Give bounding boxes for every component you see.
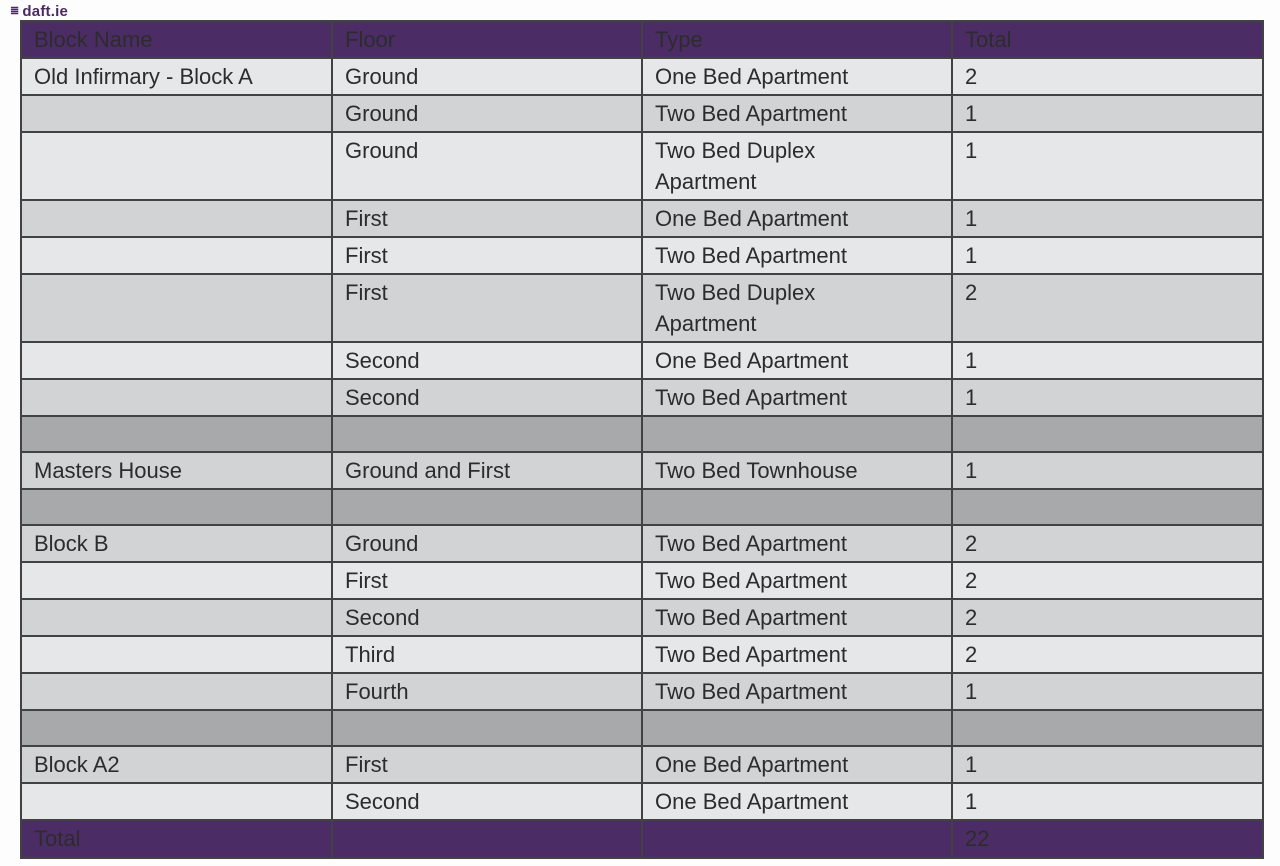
block-name-cell (21, 710, 332, 746)
type-cell: Two Bed Apartment (642, 379, 952, 416)
floor-cell: Ground (332, 58, 642, 95)
table-row: GroundTwo Bed Apartment1 (21, 95, 1263, 132)
block-name-cell (21, 342, 332, 379)
total-cell: 1 (952, 673, 1263, 710)
block-name-cell (21, 636, 332, 673)
block-name-cell (21, 783, 332, 820)
spacer-row (21, 489, 1263, 525)
block-name-cell: Masters House (21, 452, 332, 489)
total-cell: 1 (952, 95, 1263, 132)
type-cell: Two Bed Apartment (642, 562, 952, 599)
total-cell: 1 (952, 342, 1263, 379)
table-row: Masters HouseGround and FirstTwo Bed Tow… (21, 452, 1263, 489)
block-name-cell (21, 416, 332, 452)
type-cell: One Bed Apartment (642, 746, 952, 783)
daft-watermark: ≣ daft.ie (10, 3, 68, 20)
type-cell: One Bed Apartment (642, 58, 952, 95)
table-row: FirstTwo Bed Duplex Apartment2 (21, 274, 1263, 342)
table-row: Old Infirmary - Block AGroundOne Bed Apa… (21, 58, 1263, 95)
column-header-total: Total (952, 21, 1263, 58)
floor-cell: First (332, 746, 642, 783)
block-name-cell (21, 489, 332, 525)
type-cell: One Bed Apartment (642, 783, 952, 820)
total-row: Total 22 (21, 820, 1263, 858)
block-name-cell: Block B (21, 525, 332, 562)
type-cell: Two Bed Apartment (642, 673, 952, 710)
floor-cell: Third (332, 636, 642, 673)
block-name-cell (21, 95, 332, 132)
block-name-cell (21, 599, 332, 636)
type-cell: Two Bed Apartment (642, 95, 952, 132)
floor-cell: Second (332, 783, 642, 820)
table-footer: Total 22 (21, 820, 1263, 858)
table-row: FourthTwo Bed Apartment1 (21, 673, 1263, 710)
total-cell: 1 (952, 746, 1263, 783)
total-cell (952, 416, 1263, 452)
type-cell (642, 416, 952, 452)
table-body: Old Infirmary - Block AGroundOne Bed Apa… (21, 58, 1263, 820)
total-cell (952, 710, 1263, 746)
spacer-row (21, 416, 1263, 452)
block-name-cell: Old Infirmary - Block A (21, 58, 332, 95)
spacer-row (21, 710, 1263, 746)
floor-cell: Ground (332, 525, 642, 562)
table-header: Block Name Floor Type Total (21, 21, 1263, 58)
total-cell: 1 (952, 237, 1263, 274)
column-header-floor: Floor (332, 21, 642, 58)
total-cell: 1 (952, 783, 1263, 820)
floor-cell: First (332, 562, 642, 599)
block-name-cell (21, 200, 332, 237)
floor-cell: Ground (332, 95, 642, 132)
floor-cell: Ground and First (332, 452, 642, 489)
table-row: Block A2FirstOne Bed Apartment1 (21, 746, 1263, 783)
table-row: FirstTwo Bed Apartment1 (21, 237, 1263, 274)
total-cell: 2 (952, 599, 1263, 636)
floor-cell: Fourth (332, 673, 642, 710)
total-cell: 2 (952, 562, 1263, 599)
floor-cell: First (332, 274, 642, 342)
table-row: SecondTwo Bed Apartment1 (21, 379, 1263, 416)
type-cell (642, 710, 952, 746)
table-row: SecondTwo Bed Apartment2 (21, 599, 1263, 636)
table-row: SecondOne Bed Apartment1 (21, 342, 1263, 379)
type-cell: Two Bed Townhouse (642, 452, 952, 489)
header-row: Block Name Floor Type Total (21, 21, 1263, 58)
block-name-cell (21, 237, 332, 274)
table-row: Block BGroundTwo Bed Apartment2 (21, 525, 1263, 562)
total-cell: 2 (952, 636, 1263, 673)
total-cell: 2 (952, 525, 1263, 562)
grand-total-cell: 22 (952, 820, 1263, 858)
total-floor-cell (332, 820, 642, 858)
floor-cell: First (332, 200, 642, 237)
column-header-block-name: Block Name (21, 21, 332, 58)
block-name-cell (21, 274, 332, 342)
block-name-cell (21, 673, 332, 710)
total-cell: 1 (952, 379, 1263, 416)
total-cell: 1 (952, 200, 1263, 237)
table-row: FirstTwo Bed Apartment2 (21, 562, 1263, 599)
type-cell: Two Bed Apartment (642, 237, 952, 274)
type-cell: Two Bed Apartment (642, 525, 952, 562)
floor-cell (332, 710, 642, 746)
table-row: FirstOne Bed Apartment1 (21, 200, 1263, 237)
total-cell: 1 (952, 452, 1263, 489)
total-label-cell: Total (21, 820, 332, 858)
floor-cell (332, 489, 642, 525)
table-row: ThirdTwo Bed Apartment2 (21, 636, 1263, 673)
floor-cell: Second (332, 379, 642, 416)
total-cell: 1 (952, 132, 1263, 200)
floor-cell: Second (332, 599, 642, 636)
total-cell: 2 (952, 274, 1263, 342)
block-name-cell: Block A2 (21, 746, 332, 783)
type-cell: One Bed Apartment (642, 200, 952, 237)
column-header-type: Type (642, 21, 952, 58)
block-name-cell (21, 562, 332, 599)
table-row: SecondOne Bed Apartment1 (21, 783, 1263, 820)
type-cell (642, 489, 952, 525)
block-name-cell (21, 132, 332, 200)
floor-cell: Second (332, 342, 642, 379)
daft-watermark-label: daft.ie (22, 3, 68, 20)
floor-cell: First (332, 237, 642, 274)
total-cell (952, 489, 1263, 525)
type-cell: Two Bed Duplex Apartment (642, 274, 952, 342)
daft-logo-icon: ≣ (10, 6, 19, 17)
floor-cell: Ground (332, 132, 642, 200)
total-cell: 2 (952, 58, 1263, 95)
type-cell: Two Bed Duplex Apartment (642, 132, 952, 200)
total-type-cell (642, 820, 952, 858)
type-cell: Two Bed Apartment (642, 636, 952, 673)
table-row: GroundTwo Bed Duplex Apartment1 (21, 132, 1263, 200)
type-cell: One Bed Apartment (642, 342, 952, 379)
block-name-cell (21, 379, 332, 416)
floor-cell (332, 416, 642, 452)
unit-schedule-table: Block Name Floor Type Total Old Infirmar… (20, 20, 1264, 859)
type-cell: Two Bed Apartment (642, 599, 952, 636)
